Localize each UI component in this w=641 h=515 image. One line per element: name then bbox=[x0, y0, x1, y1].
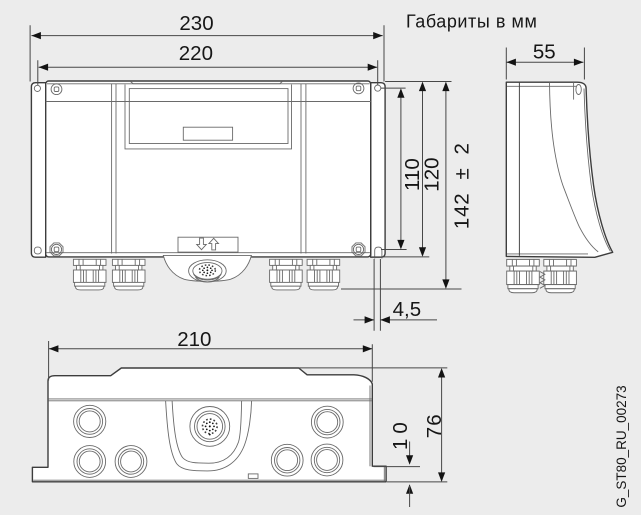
svg-text:142 ± 2: 142 ± 2 bbox=[451, 142, 474, 229]
svg-text:55: 55 bbox=[533, 41, 556, 64]
svg-text:210: 210 bbox=[177, 328, 211, 351]
svg-text:220: 220 bbox=[179, 42, 213, 65]
svg-text:10: 10 bbox=[389, 417, 412, 450]
svg-text:Габариты в мм: Габариты в мм bbox=[406, 12, 537, 32]
svg-text:76: 76 bbox=[423, 413, 446, 438]
svg-text:230: 230 bbox=[179, 12, 213, 35]
svg-text:4,5: 4,5 bbox=[393, 298, 422, 321]
svg-text:120: 120 bbox=[421, 157, 444, 191]
svg-text:G_ST80_RU_00273: G_ST80_RU_00273 bbox=[614, 385, 629, 507]
